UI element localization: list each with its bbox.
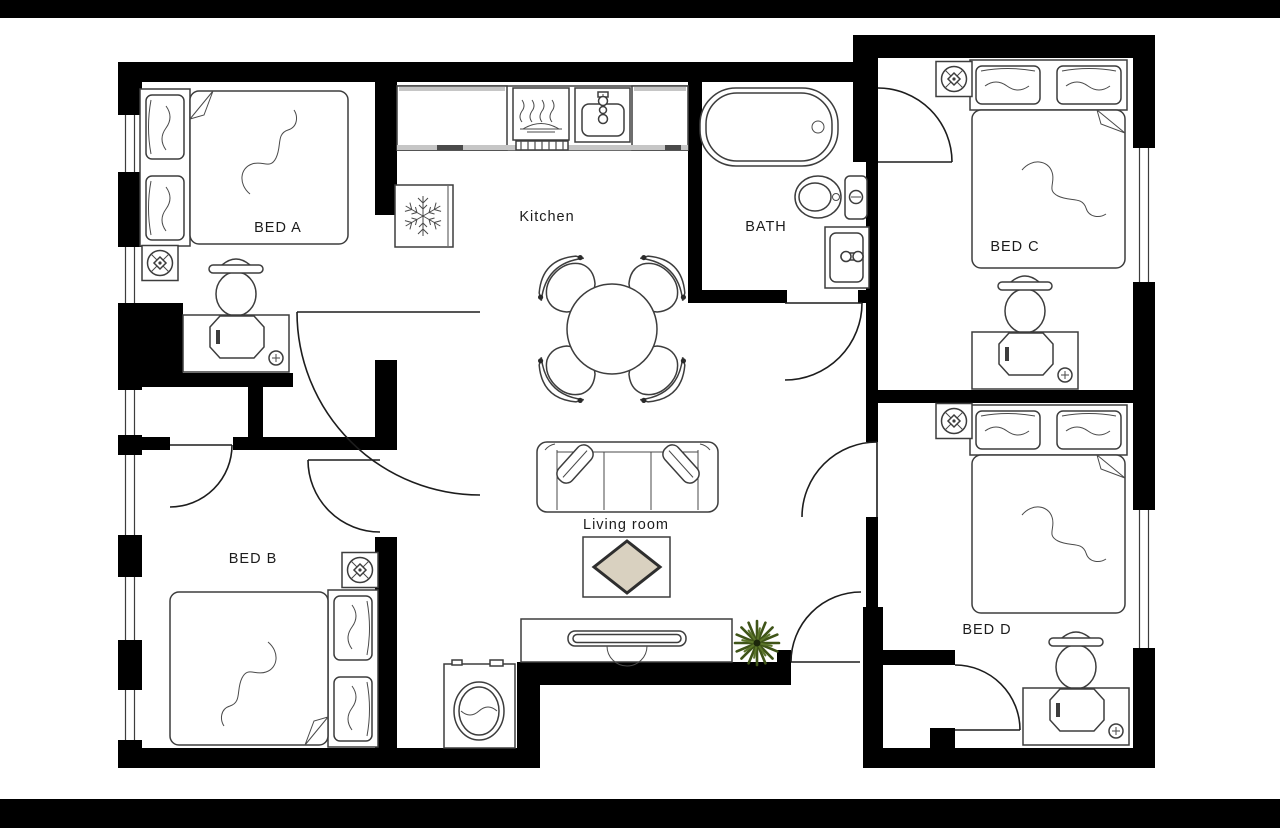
bathroom-sink: [825, 227, 869, 288]
ceiling-fan-icon: [142, 246, 178, 281]
window: [118, 390, 142, 435]
window: [118, 115, 142, 172]
wall-segment: [1133, 35, 1155, 768]
wall-segment: [375, 360, 397, 450]
room-label-kitchen: Kitchen: [519, 209, 574, 225]
window: [1133, 148, 1155, 282]
bathtub: [700, 88, 838, 166]
letterbox-top: [0, 0, 1280, 18]
wall-segment: [866, 302, 878, 442]
room-label-bed-b: BED B: [229, 551, 278, 567]
wall-segment: [688, 80, 702, 302]
sofa: [537, 442, 718, 512]
double-bed: [970, 405, 1127, 613]
toilet: [795, 176, 867, 219]
ceiling-fan-icon: [342, 553, 378, 588]
wall-segment: [863, 748, 1155, 768]
wall-segment: [517, 662, 791, 685]
wall-segment: [375, 62, 397, 215]
ceiling-fan-icon: [936, 62, 972, 97]
kitchen-counter: [397, 86, 688, 150]
kitchen-sink: [575, 88, 630, 142]
window: [118, 247, 142, 303]
wall-segment: [118, 62, 853, 82]
double-bed: [170, 590, 378, 747]
floor-plan-canvas: BED A Kitchen BATH BED C BED B Living ro…: [0, 0, 1280, 828]
room-label-bed-d: BED D: [962, 622, 1011, 638]
wall-segment: [853, 35, 878, 162]
floor-plan: BED A Kitchen BATH BED C BED B Living ro…: [0, 0, 1280, 828]
wall-segment: [777, 650, 791, 664]
window: [118, 455, 142, 535]
double-bed: [140, 89, 348, 246]
dining-table: [567, 284, 657, 374]
wall-segment: [118, 373, 293, 387]
double-bed: [970, 60, 1127, 268]
coffee-table-rug: [583, 537, 670, 597]
letterbox-bottom: [0, 799, 1280, 828]
window: [1133, 510, 1155, 648]
wall-segment: [118, 748, 540, 768]
wall-segment: [853, 35, 1155, 58]
wall-segment: [883, 650, 955, 665]
wall-segment: [517, 662, 540, 768]
wall-segment: [118, 437, 170, 450]
wall-segment: [688, 290, 787, 303]
tv-console: [521, 619, 732, 666]
wall-segment: [930, 728, 955, 748]
room-label-bed-c: BED C: [990, 239, 1039, 255]
wall-segment: [866, 517, 878, 607]
room-label-living: Living room: [583, 517, 669, 533]
wall-segment: [863, 607, 883, 768]
window: [118, 577, 142, 640]
washing-machine: [444, 660, 515, 748]
plant: [735, 621, 779, 665]
wall-segment: [866, 390, 1133, 403]
ceiling-fan-icon: [936, 404, 972, 439]
room-label-bed-a: BED A: [254, 220, 302, 236]
room-label-bath: BATH: [745, 219, 787, 235]
refrigerator: [395, 185, 453, 247]
window: [118, 690, 142, 740]
wall-segment: [248, 385, 263, 443]
wall-segment: [140, 303, 183, 375]
stove: [513, 88, 569, 150]
